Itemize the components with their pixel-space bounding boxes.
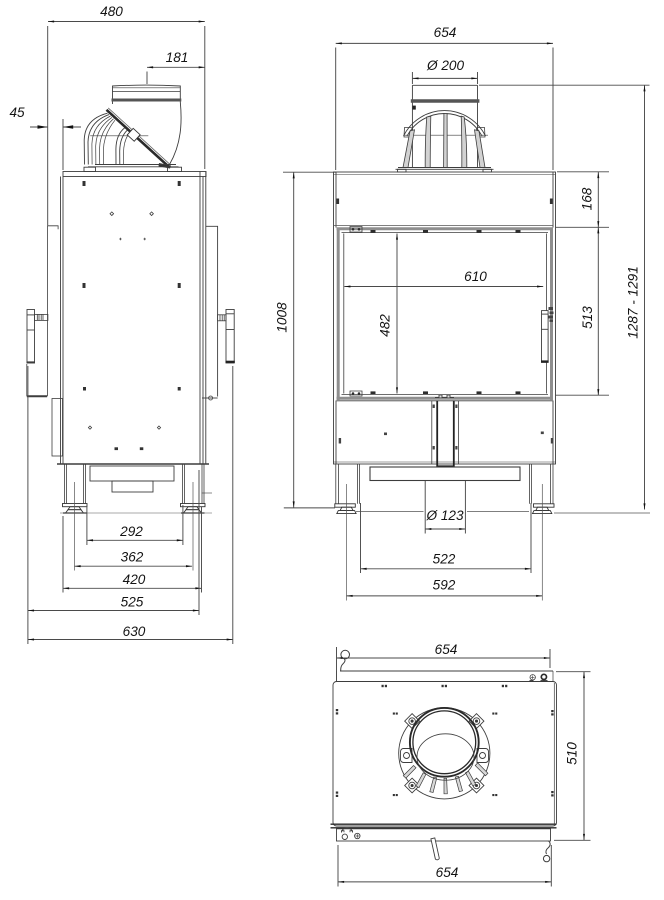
svg-text:168: 168 (580, 187, 595, 210)
svg-text:654: 654 (435, 642, 458, 657)
svg-text:1008: 1008 (275, 302, 290, 333)
svg-text:181: 181 (166, 50, 189, 65)
svg-text:654: 654 (436, 865, 459, 880)
svg-text:1287 - 1291: 1287 - 1291 (626, 266, 641, 339)
svg-text:362: 362 (121, 550, 144, 565)
svg-text:522: 522 (433, 552, 456, 567)
svg-text:630: 630 (123, 624, 146, 639)
svg-text:45: 45 (9, 105, 25, 120)
svg-text:Ø 123: Ø 123 (425, 508, 463, 523)
svg-text:420: 420 (123, 572, 146, 587)
svg-text:480: 480 (100, 4, 123, 19)
svg-text:510: 510 (565, 742, 580, 765)
svg-text:Ø 200: Ø 200 (426, 58, 464, 73)
svg-text:525: 525 (121, 595, 144, 610)
svg-text:592: 592 (433, 578, 456, 593)
svg-text:654: 654 (434, 25, 457, 40)
svg-text:610: 610 (464, 269, 487, 284)
svg-text:513: 513 (580, 306, 595, 329)
svg-text:482: 482 (378, 314, 393, 337)
svg-text:292: 292 (119, 524, 143, 539)
